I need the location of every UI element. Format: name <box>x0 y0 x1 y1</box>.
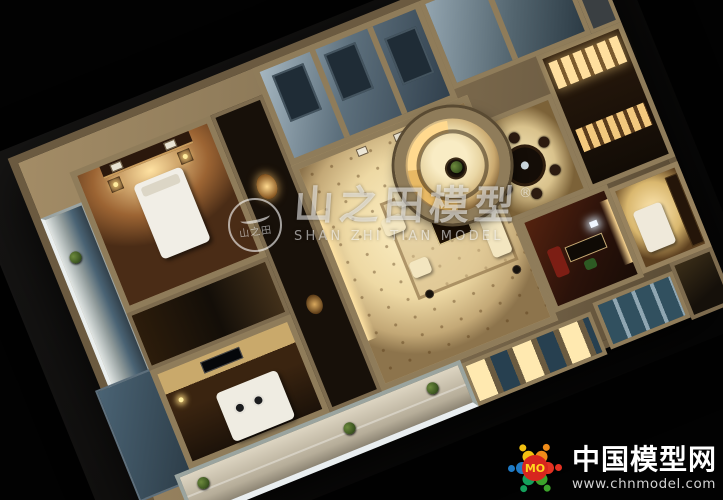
site-name: 中国模型网 <box>572 445 717 475</box>
dining-chair <box>536 134 551 149</box>
registered-trademark-symbol: ® <box>519 186 532 201</box>
people-circle-icon: MO <box>507 440 563 496</box>
bed <box>632 201 676 253</box>
round-cushion <box>232 400 248 416</box>
seal-logo-icon: 山之田 <box>228 198 282 252</box>
mo-badge: MO <box>522 455 548 481</box>
pillows <box>140 173 181 197</box>
table-centerpiece <box>520 160 530 170</box>
watermark-subtitle: SHAN ZHI TIAN MODEL <box>294 229 532 244</box>
plant <box>68 250 84 266</box>
lit-art-niche <box>303 292 325 317</box>
site-brand: MO 中国模型网 www.chnmodel.com <box>507 440 717 496</box>
doorway <box>272 63 322 122</box>
model-photograph: 山之田 山之田模型® SHAN ZHI TIAN MODEL MO 中国模型网 … <box>0 0 723 500</box>
dining-chair <box>506 130 520 144</box>
partition-wall <box>481 0 518 60</box>
site-url: www.chnmodel.com <box>572 476 717 492</box>
monitor-light <box>589 220 599 229</box>
brand-text: 中国模型网 www.chnmodel.com <box>572 445 717 492</box>
bed <box>133 166 211 260</box>
lamp <box>178 397 185 404</box>
television <box>200 347 243 374</box>
lit-cabinets <box>575 102 653 152</box>
desk-chair <box>583 257 598 271</box>
desk <box>564 233 607 263</box>
round-cushion <box>251 393 267 409</box>
watermark: 山之田 山之田模型® SHAN ZHI TIAN MODEL <box>228 184 532 252</box>
dining-chair <box>548 163 560 175</box>
watermark-text: 山之田模型® SHAN ZHI TIAN MODEL <box>294 184 532 244</box>
watermark-chinese: 山之田模型 <box>292 184 520 228</box>
